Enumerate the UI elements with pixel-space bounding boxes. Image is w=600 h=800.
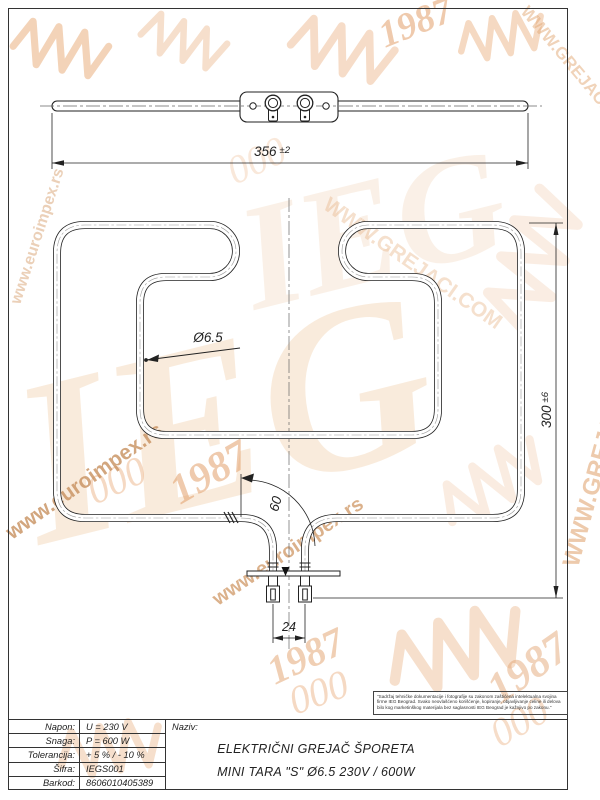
table-row: Tolerancija: + 5 % / - 10 % [8, 748, 165, 762]
drawing-frame [8, 8, 568, 790]
table-row: Šifra: IEGS001 [8, 763, 165, 777]
naziv-label: Naziv: [172, 722, 198, 732]
spec-table: Napon: U = 230 V Snaga: P = 600 W Tolera… [8, 720, 166, 790]
spec-value: U = 230 V [80, 722, 165, 732]
table-row: Napon: U = 230 V [8, 720, 165, 734]
table-row: Barkod: 8606010405389 [8, 777, 165, 790]
title-block: Napon: U = 230 V Snaga: P = 600 W Tolera… [8, 719, 568, 790]
spec-label: Napon: [8, 720, 80, 733]
spec-value: IEGS001 [80, 764, 165, 774]
product-title-line2: MINI TARA "S" Ø6.5 230V / 600W [166, 765, 466, 779]
spec-value: 8606010405389 [80, 778, 165, 788]
spec-label: Tolerancija: [8, 748, 80, 761]
spec-value: + 5 % / - 10 % [80, 750, 165, 760]
table-row: Snaga: P = 600 W [8, 734, 165, 748]
spec-label: Barkod: [8, 777, 80, 790]
spec-label: Snaga: [8, 734, 80, 747]
product-title-line1: ELEKTRIČNI GREJAČ ŠPORETA [166, 742, 466, 756]
spec-value: P = 600 W [80, 736, 165, 746]
disclaimer-box: "Sadržaj tehničke dokumentacije i fotogr… [373, 691, 568, 715]
drawing-sheet: IEG IEG 000 000 000 000 1987 1987 1987 1… [0, 0, 600, 800]
spec-label: Šifra: [8, 763, 80, 776]
naziv-cell: Naziv: ELEKTRIČNI GREJAČ ŠPORETA MINI TA… [166, 720, 568, 790]
disclaimer-text: "Sadržaj tehničke dokumentacije i fotogr… [377, 694, 561, 711]
